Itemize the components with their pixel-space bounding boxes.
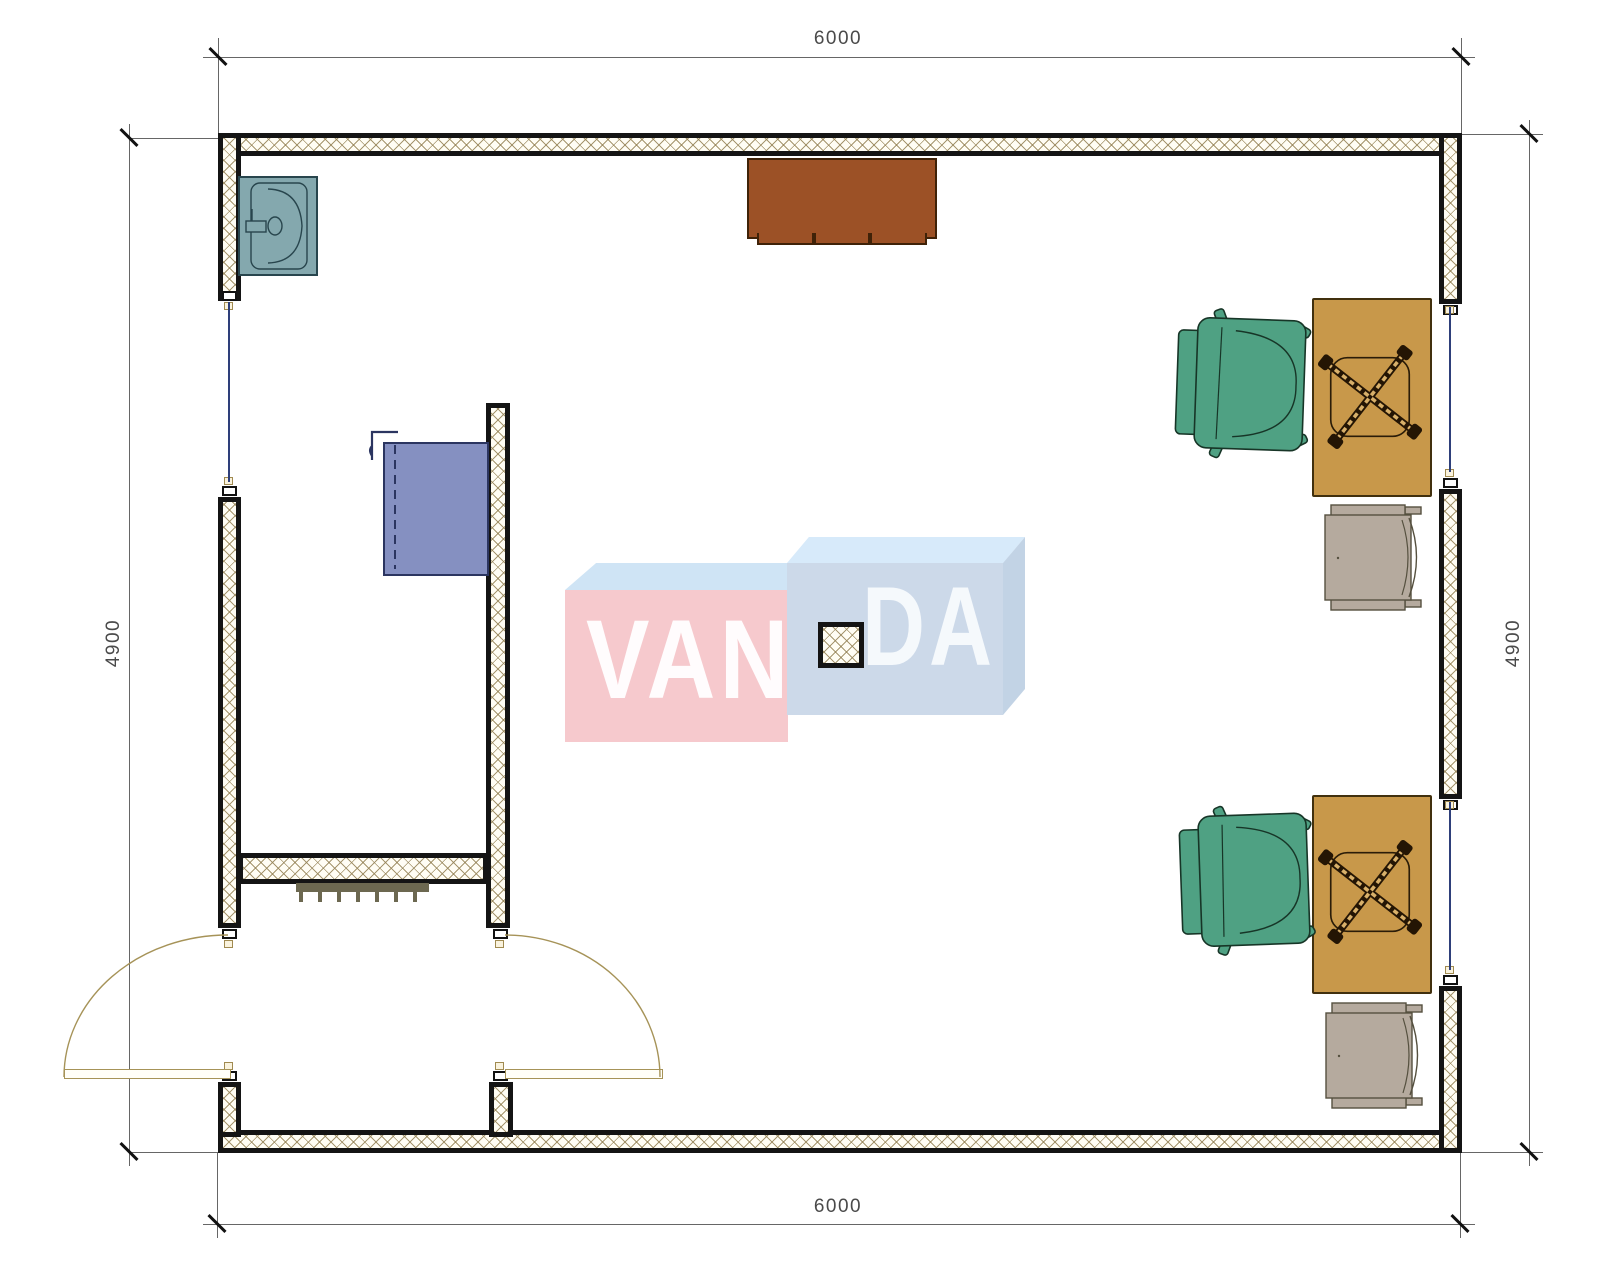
radiator-fins (299, 892, 430, 902)
armchair-gray-lower (1326, 1003, 1426, 1108)
cabinet-bracket-icon (366, 426, 400, 470)
sink-icon (238, 176, 318, 276)
office-chair-green-upper (1174, 314, 1311, 455)
chair-cross-base-icon (1308, 335, 1432, 459)
table-foot (870, 233, 927, 245)
armchair-gray-upper (1325, 505, 1425, 610)
chair-cross-base-icon (1308, 830, 1432, 954)
table-foot (814, 233, 870, 245)
radiator-icon (296, 883, 429, 892)
table-foot (757, 233, 814, 245)
table-top-center (747, 158, 937, 239)
office-chair-green-lower (1178, 810, 1315, 951)
floor-plan: VAN DA 6000 6000 4900 4900 (0, 0, 1600, 1280)
